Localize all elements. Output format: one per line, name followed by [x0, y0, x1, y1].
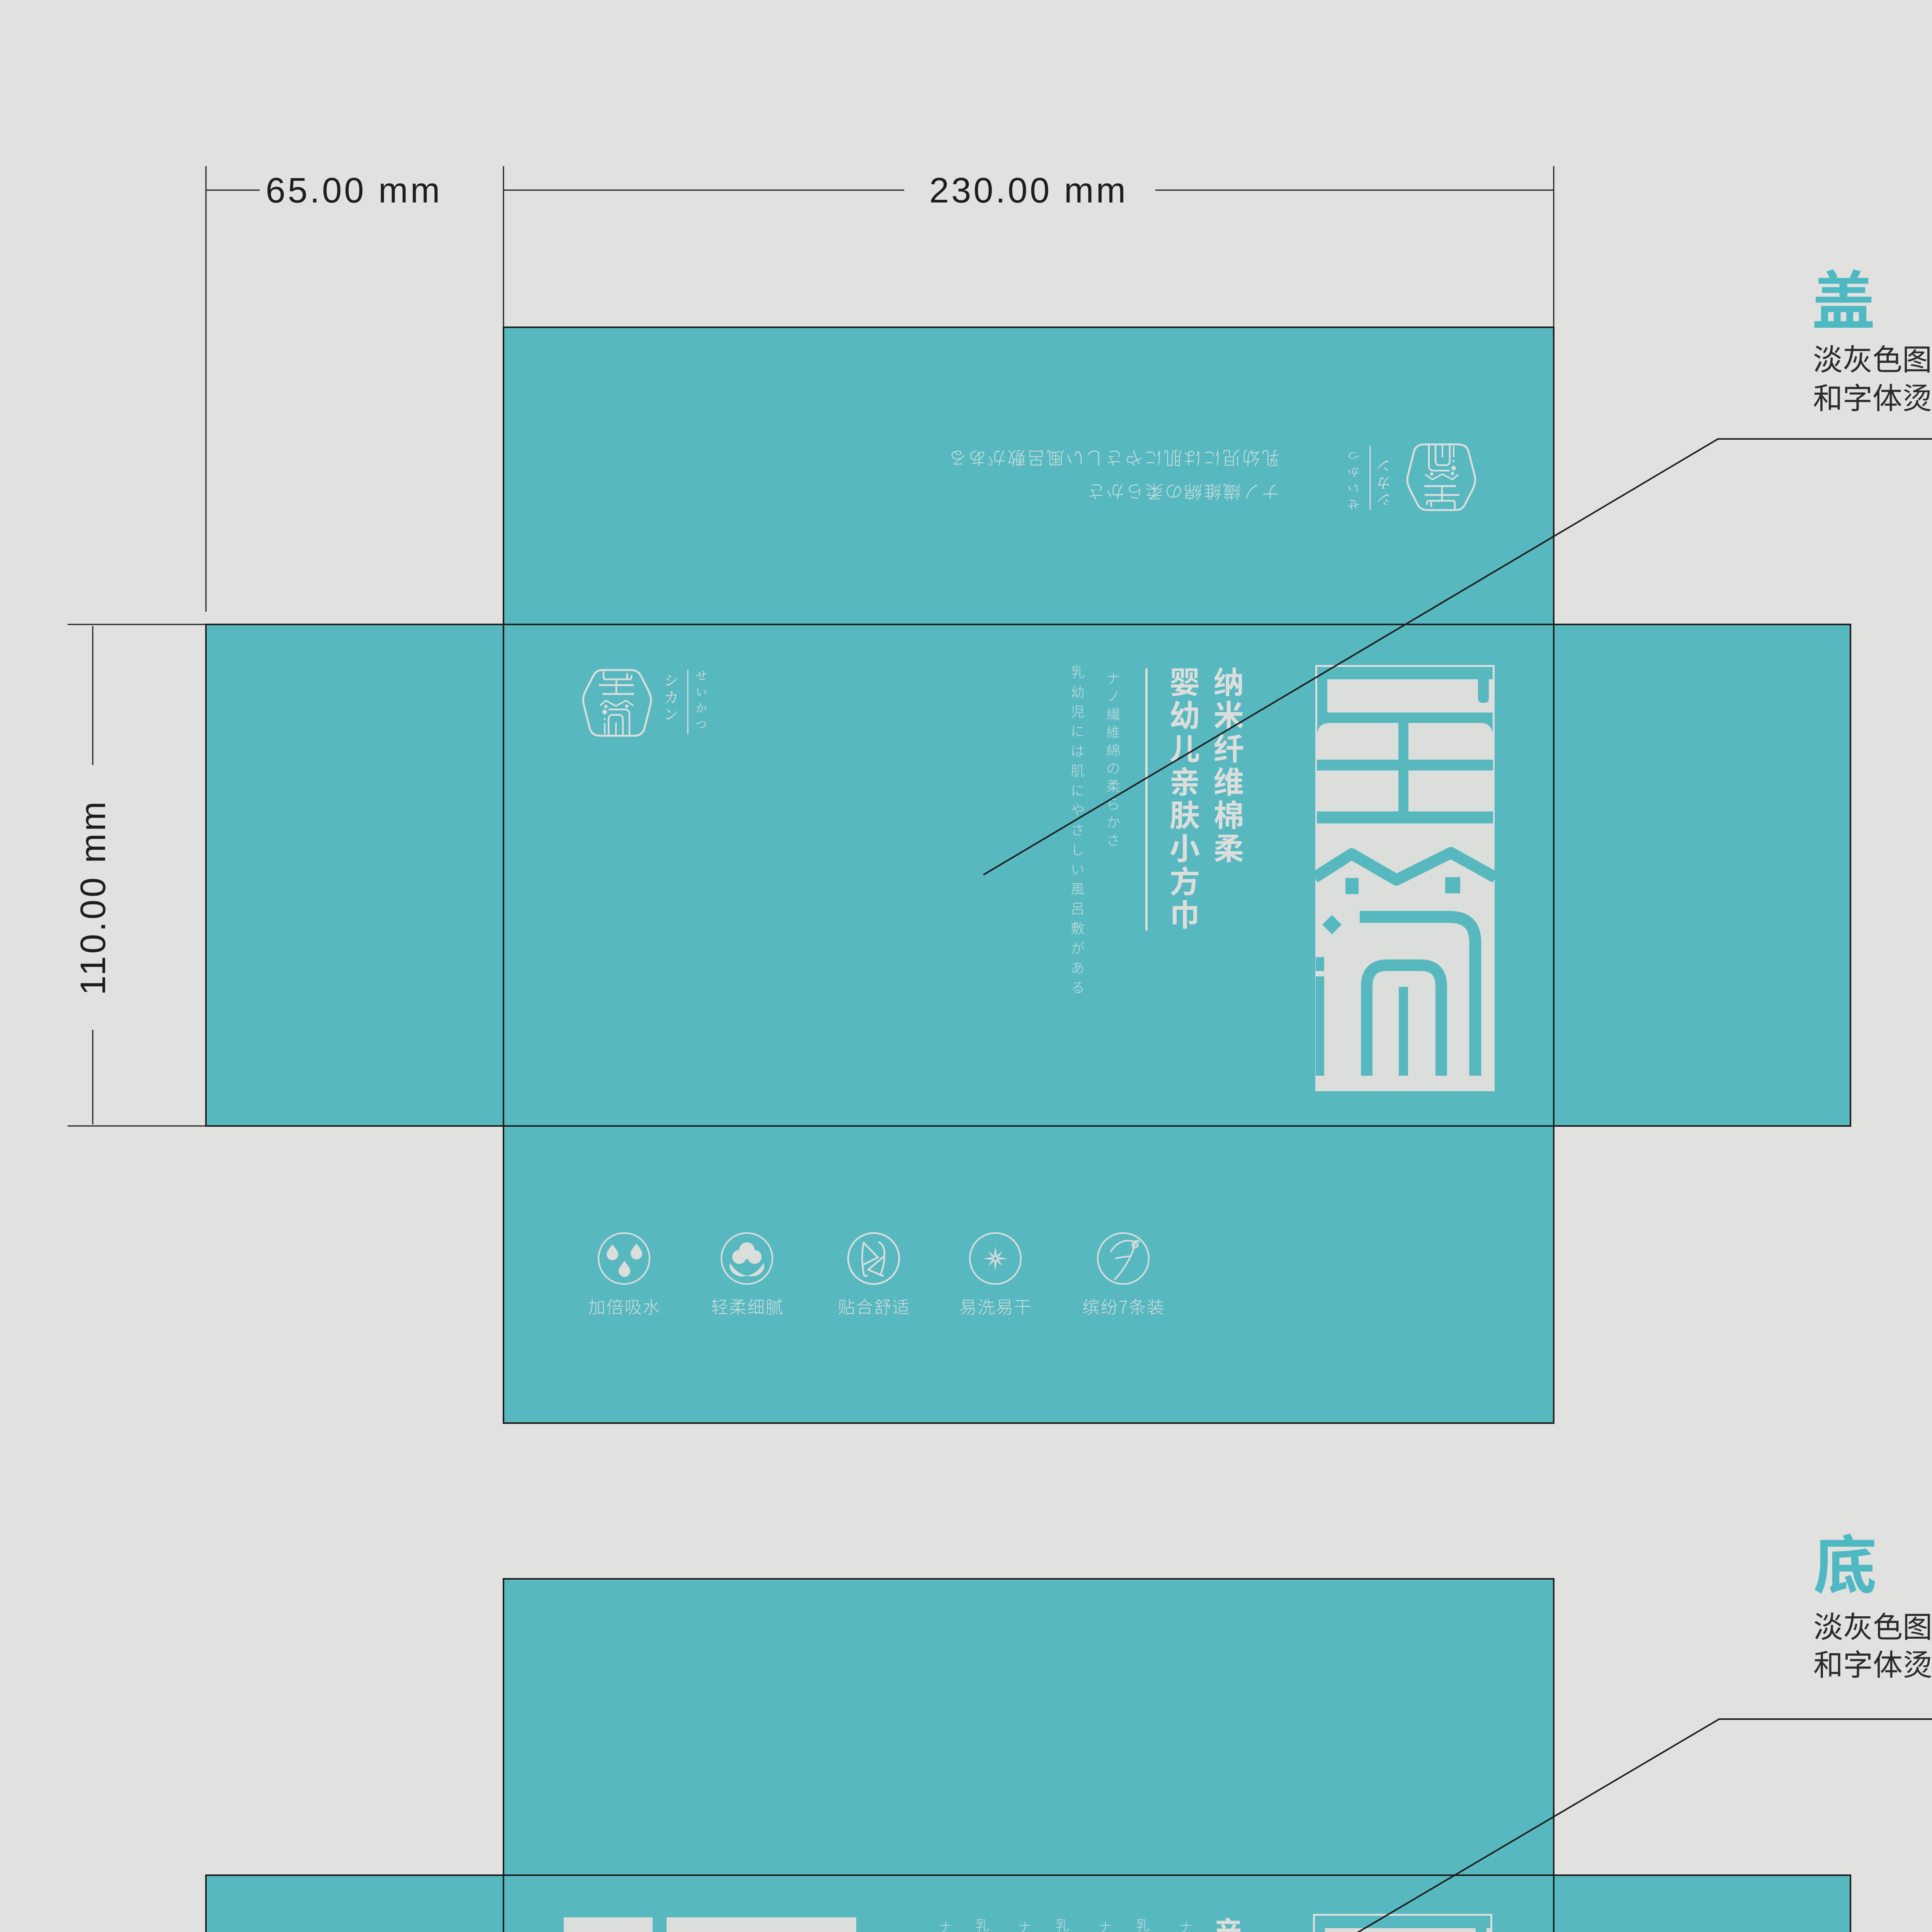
svg-text:110.00 mm: 110.00 mm	[73, 799, 113, 995]
svg-text:65.00 mm: 65.00 mm	[265, 171, 442, 210]
svg-text:230.00 mm: 230.00 mm	[929, 171, 1128, 210]
